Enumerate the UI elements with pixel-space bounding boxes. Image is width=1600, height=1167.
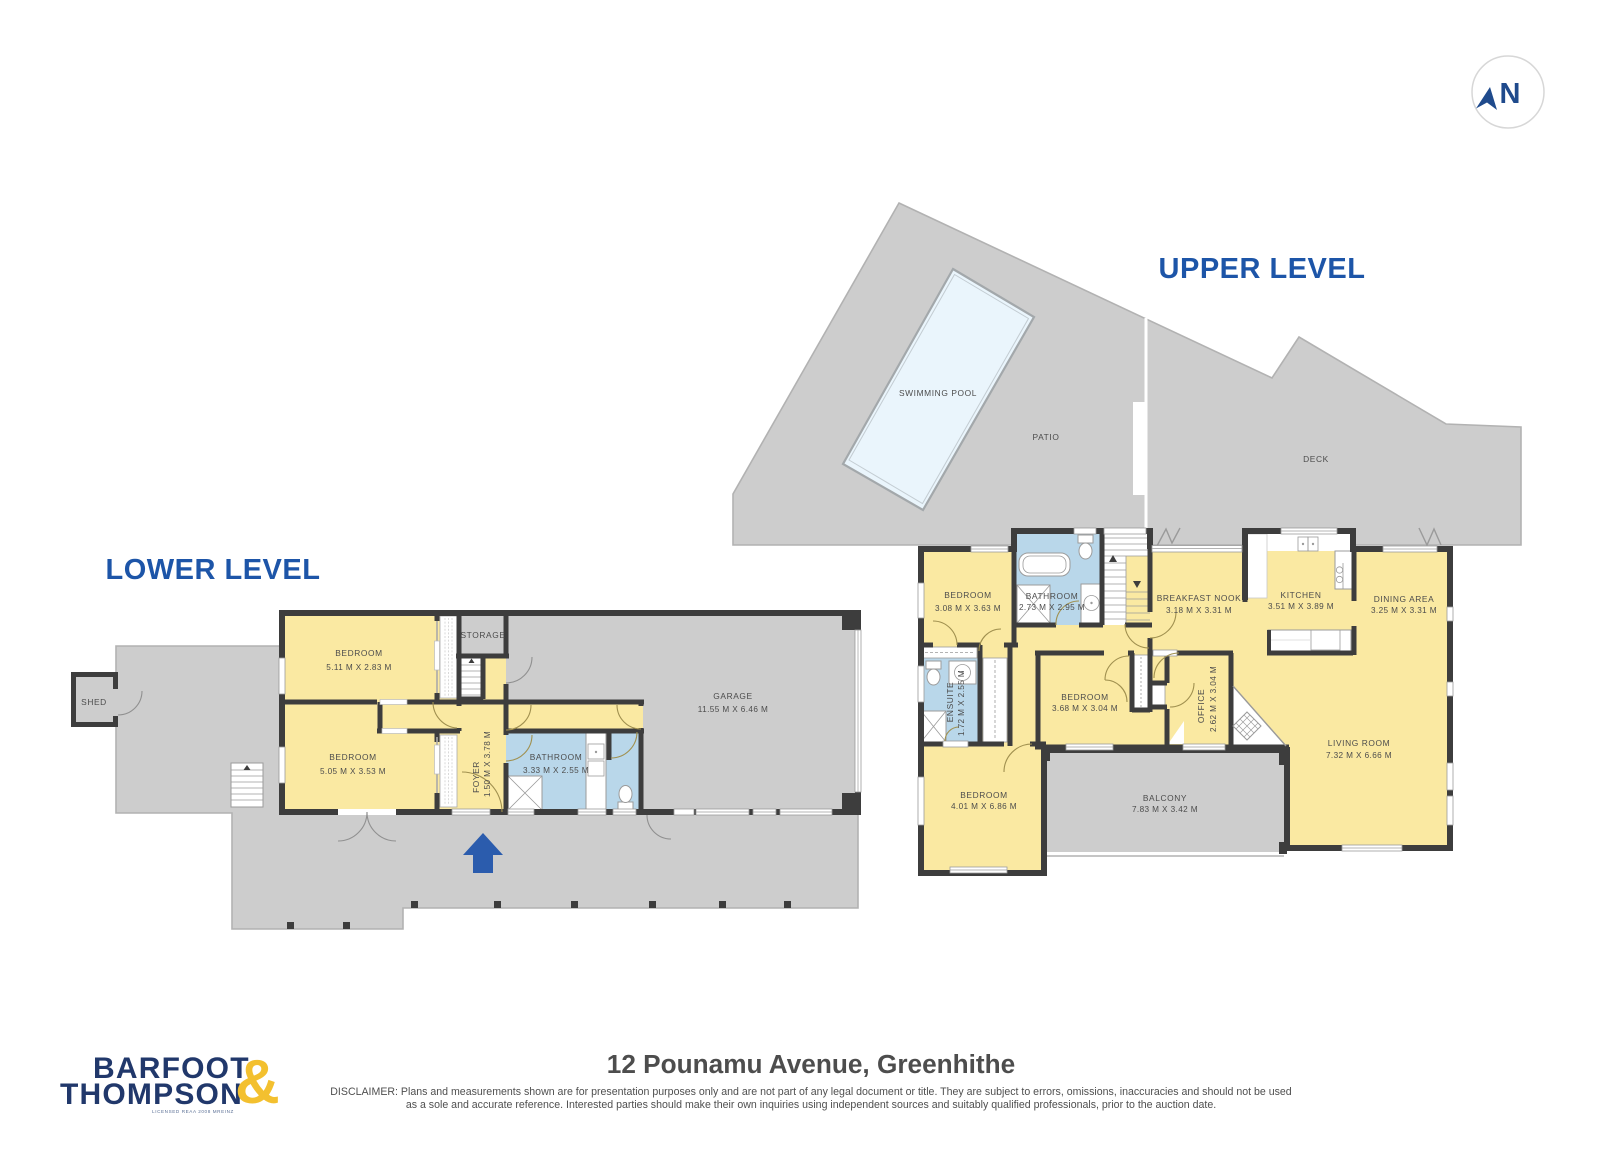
svg-text:DECK: DECK	[1303, 454, 1329, 464]
svg-text:3.68 M X 3.04 M: 3.68 M X 3.04 M	[1052, 704, 1118, 713]
svg-text:1.72 M X 2.55 M: 1.72 M X 2.55 M	[957, 670, 966, 736]
svg-text:2.62 M X 3.04 M: 2.62 M X 3.04 M	[1209, 666, 1218, 732]
svg-text:ENSUITE: ENSUITE	[945, 682, 955, 723]
svg-text:PATIO: PATIO	[1033, 432, 1060, 442]
svg-text:LIVING ROOM: LIVING ROOM	[1328, 738, 1390, 748]
svg-text:2.73 M X 2.95 M: 2.73 M X 2.95 M	[1019, 603, 1085, 612]
svg-text:BEDROOM: BEDROOM	[335, 648, 382, 658]
svg-text:BEDROOM: BEDROOM	[1061, 692, 1108, 702]
svg-text:SHED: SHED	[81, 697, 107, 707]
svg-text:SWIMMING POOL: SWIMMING POOL	[899, 388, 977, 398]
svg-text:DINING AREA: DINING AREA	[1374, 594, 1435, 604]
svg-text:4.01 M X 6.86 M: 4.01 M X 6.86 M	[951, 802, 1017, 811]
svg-text:N: N	[1500, 78, 1521, 110]
svg-text:UPPER LEVEL: UPPER LEVEL	[1159, 253, 1366, 285]
svg-text:3.51 M X 3.89 M: 3.51 M X 3.89 M	[1268, 602, 1334, 611]
svg-text:BATHROOM: BATHROOM	[1026, 591, 1079, 601]
svg-text:DISCLAIMER: Plans and measurem: DISCLAIMER: Plans and measurements shown…	[330, 1086, 1292, 1098]
svg-text:OFFICE: OFFICE	[1196, 689, 1206, 723]
svg-text:LICENSED REAA 2008 MREINZ: LICENSED REAA 2008 MREINZ	[152, 1109, 234, 1114]
svg-text:3.25 M X 3.31 M: 3.25 M X 3.31 M	[1371, 606, 1437, 615]
svg-text:KITCHEN: KITCHEN	[1281, 590, 1322, 600]
svg-text:7.32 M X 6.66 M: 7.32 M X 6.66 M	[1326, 751, 1392, 760]
svg-text:THOMPSON: THOMPSON	[60, 1078, 243, 1111]
svg-text:BATHROOM: BATHROOM	[530, 752, 583, 762]
svg-text:12 Pounamu Avenue, Greenhithe: 12 Pounamu Avenue, Greenhithe	[607, 1049, 1015, 1079]
svg-text:1.50 M X 3.78 M: 1.50 M X 3.78 M	[483, 731, 492, 797]
svg-text:7.83 M X 3.42 M: 7.83 M X 3.42 M	[1132, 805, 1198, 814]
svg-text:GARAGE: GARAGE	[713, 691, 752, 701]
svg-text:BREAKFAST NOOK: BREAKFAST NOOK	[1157, 593, 1242, 603]
svg-text:3.08 M X 3.63 M: 3.08 M X 3.63 M	[935, 604, 1001, 613]
svg-text:&: &	[235, 1048, 280, 1117]
svg-text:5.11 M X 2.83 M: 5.11 M X 2.83 M	[326, 663, 391, 672]
svg-text:FOYER: FOYER	[471, 761, 481, 793]
svg-text:BEDROOM: BEDROOM	[329, 752, 376, 762]
svg-text:as a sole and accurate referen: as a sole and accurate reference. Intere…	[406, 1099, 1216, 1111]
svg-text:3.18 M X 3.31 M: 3.18 M X 3.31 M	[1166, 606, 1232, 615]
svg-text:LOWER LEVEL: LOWER LEVEL	[106, 554, 321, 586]
svg-text:3.33 M X 2.55 M: 3.33 M X 2.55 M	[523, 766, 589, 775]
svg-text:BEDROOM: BEDROOM	[944, 590, 991, 600]
svg-text:BALCONY: BALCONY	[1143, 793, 1187, 803]
svg-text:STORAGE: STORAGE	[461, 630, 506, 640]
svg-text:11.55 M X 6.46 M: 11.55 M X 6.46 M	[698, 705, 768, 714]
svg-text:5.05 M X 3.53 M: 5.05 M X 3.53 M	[320, 767, 386, 776]
svg-text:BEDROOM: BEDROOM	[960, 790, 1007, 800]
